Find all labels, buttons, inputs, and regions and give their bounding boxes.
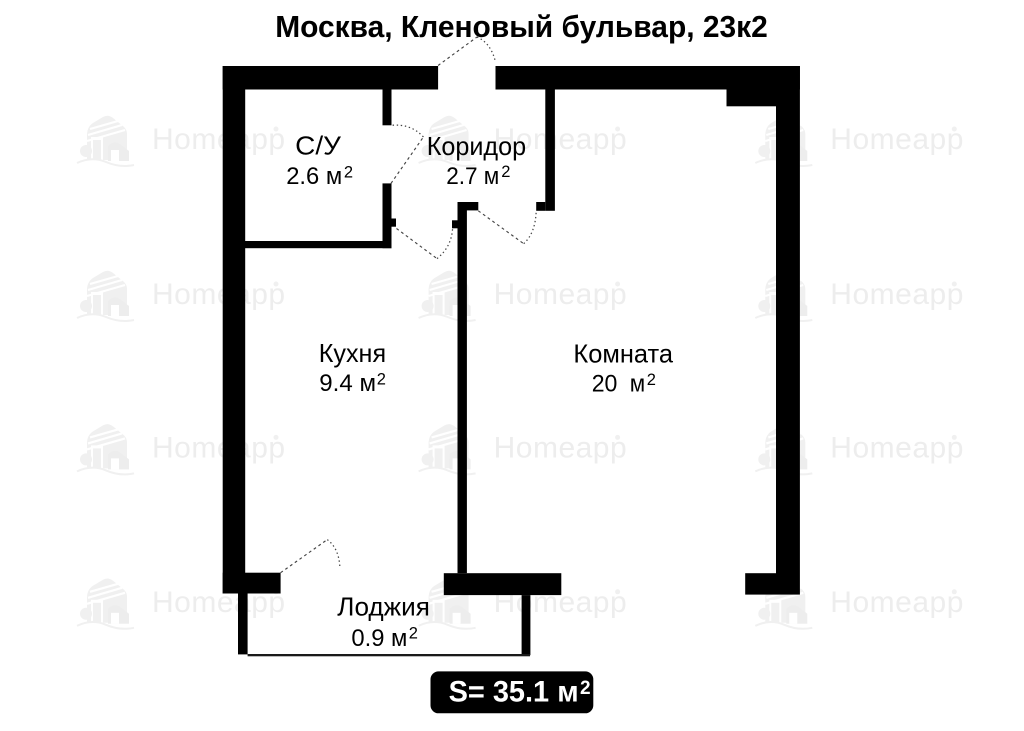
svg-text:Кухня: Кухня: [319, 338, 386, 368]
svg-text:20: 20: [592, 371, 618, 398]
svg-text:Комната: Комната: [573, 338, 673, 368]
svg-text:2: 2: [344, 163, 353, 181]
svg-text:м: м: [630, 371, 645, 398]
svg-text:С/У: С/У: [295, 131, 341, 161]
svg-text:Лоджия: Лоджия: [337, 592, 430, 622]
svg-text:Москва, Кленовый бульвар, 23к2: Москва, Кленовый бульвар, 23к2: [275, 9, 768, 44]
svg-text:2: 2: [377, 370, 386, 388]
svg-text:Коридор: Коридор: [427, 131, 526, 161]
svg-text:2: 2: [409, 624, 418, 642]
svg-text:2.7 м: 2.7 м: [446, 163, 499, 190]
svg-text:2.6 м: 2.6 м: [286, 163, 342, 190]
svg-text:2: 2: [580, 678, 591, 699]
svg-text:9.4 м: 9.4 м: [319, 370, 376, 397]
svg-text:0.9 м: 0.9 м: [351, 625, 407, 652]
svg-text:S= 35.1 м: S= 35.1 м: [449, 675, 579, 708]
svg-text:2: 2: [501, 163, 510, 181]
svg-text:2: 2: [647, 371, 656, 389]
